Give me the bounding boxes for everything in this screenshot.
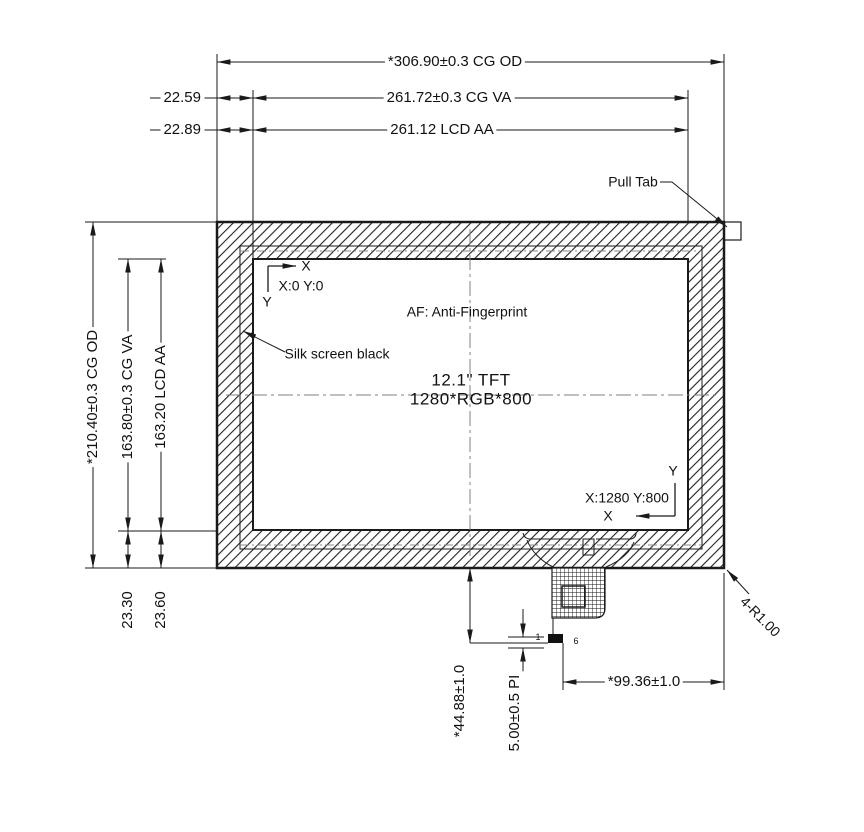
dim-cg-va-offset-x: 22.59 xyxy=(160,90,204,107)
end-y-axis-label: Y xyxy=(668,463,677,478)
origin-coord-label: X:0 Y:0 xyxy=(279,278,324,293)
origin-y-axis-label: Y xyxy=(262,294,271,309)
dim-lcd-aa-offset-y: 23.60 xyxy=(153,588,170,632)
lcd-module-outline-drawing: *306.90±0.3 CG OD 22.59 261.72±0.3 CG VA… xyxy=(0,0,864,832)
pin-6-label: 6 xyxy=(573,637,578,647)
dim-cg-va-width: 261.72±0.3 CG VA xyxy=(384,90,515,107)
dim-cg-od-height: *210.40±0.3 CG OD xyxy=(85,327,102,467)
dim-cg-od-width: *306.90±0.3 CG OD xyxy=(385,54,525,71)
dim-pin-pitch: 5.00±0.5 PI xyxy=(507,672,524,755)
af-note: AF: Anti-Fingerprint xyxy=(407,304,528,319)
dim-cg-va-height: 163.80±0.3 CG VA xyxy=(120,332,137,463)
dim-lcd-aa-width: 261.12 LCD AA xyxy=(387,122,496,139)
dim-fpc-offset-x: *99.36±1.0 xyxy=(605,674,683,691)
panel-resolution-label: 1280*RGB*800 xyxy=(410,391,532,410)
end-x-axis-label: X xyxy=(603,508,612,523)
pin-1-label: 1 xyxy=(535,633,540,643)
origin-x-axis-label: X xyxy=(301,258,310,273)
dim-lcd-aa-height: 163.20 LCD AA xyxy=(153,342,170,451)
dim-fpc-drop: *44.88±1.0 xyxy=(452,662,469,740)
end-coord-label: X:1280 Y:800 xyxy=(585,490,669,505)
fpc-connector-pad xyxy=(552,568,605,618)
silk-screen-label: Silk screen black xyxy=(284,346,389,361)
dim-cg-va-offset-y: 23.30 xyxy=(120,588,137,632)
pin-connector-mark xyxy=(548,634,563,643)
pull-tab-shape xyxy=(724,222,741,240)
panel-size-label: 12.1" TFT xyxy=(431,372,510,391)
pull-tab-label: Pull Tab xyxy=(608,174,658,189)
dim-lcd-aa-offset-x: 22.89 xyxy=(160,122,204,139)
